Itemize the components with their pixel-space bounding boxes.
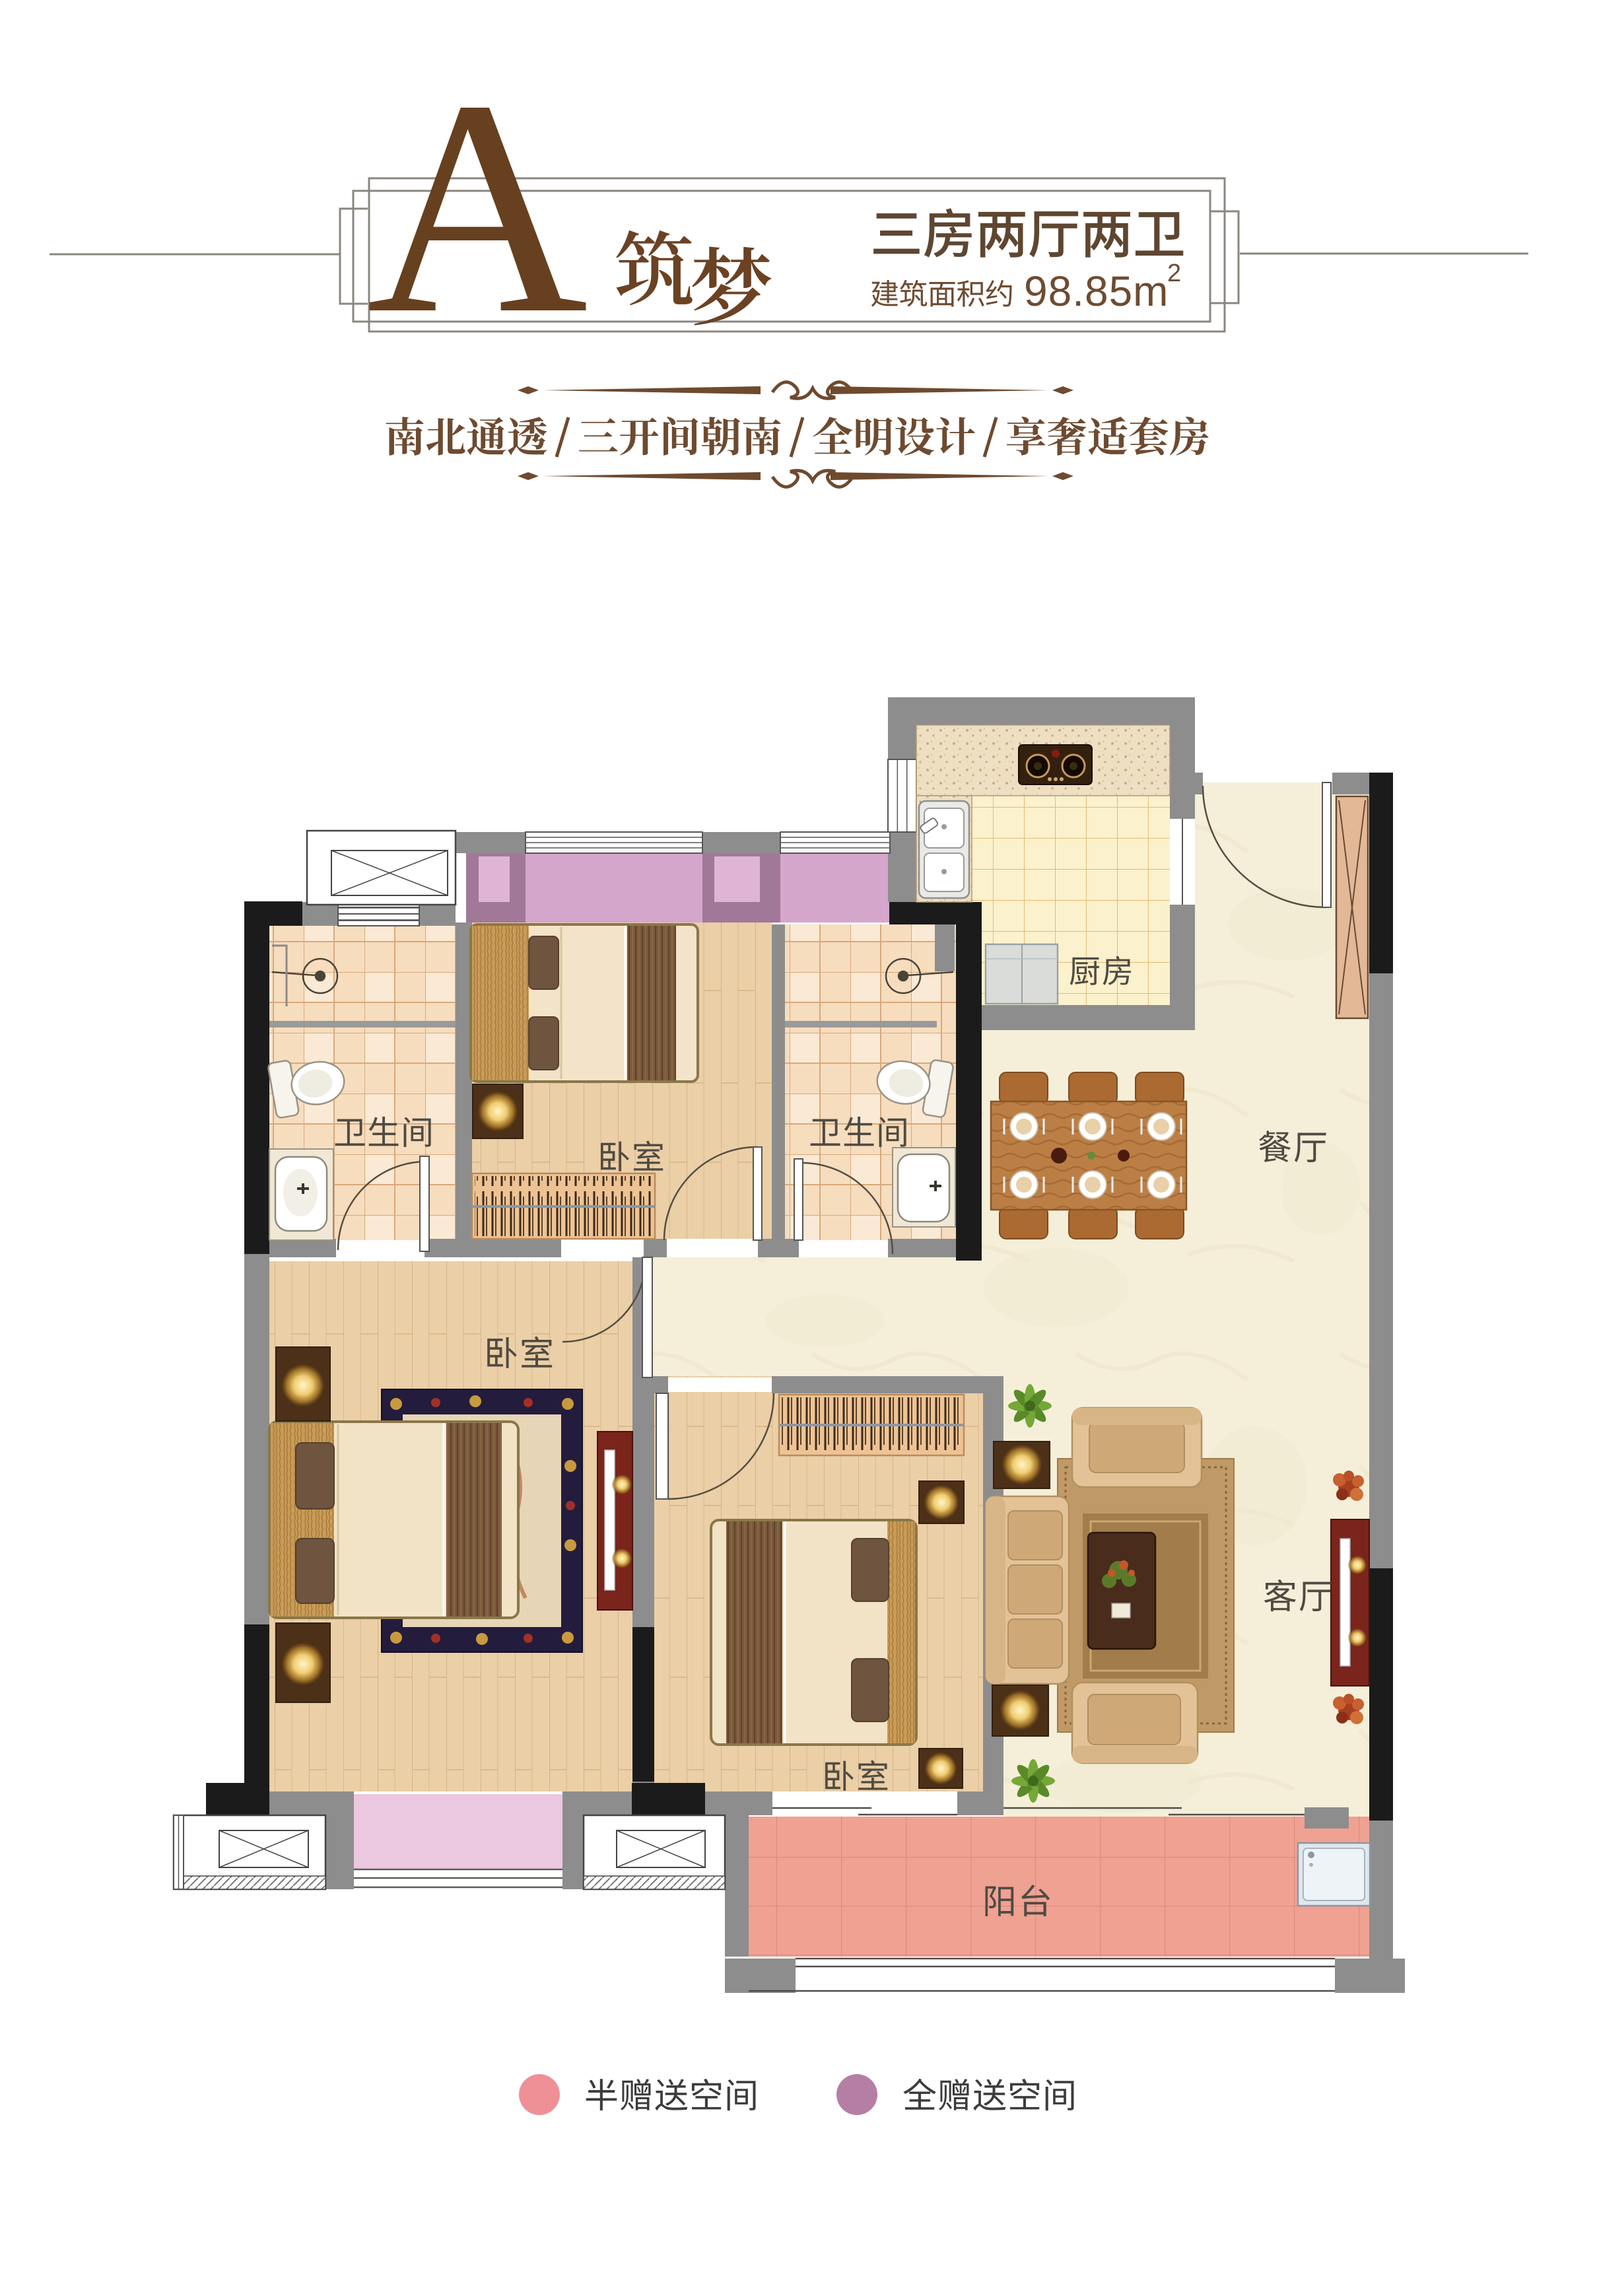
svg-text:98.85m: 98.85m bbox=[1024, 267, 1169, 315]
svg-text:2: 2 bbox=[1167, 260, 1181, 287]
svg-text:A: A bbox=[366, 37, 588, 377]
